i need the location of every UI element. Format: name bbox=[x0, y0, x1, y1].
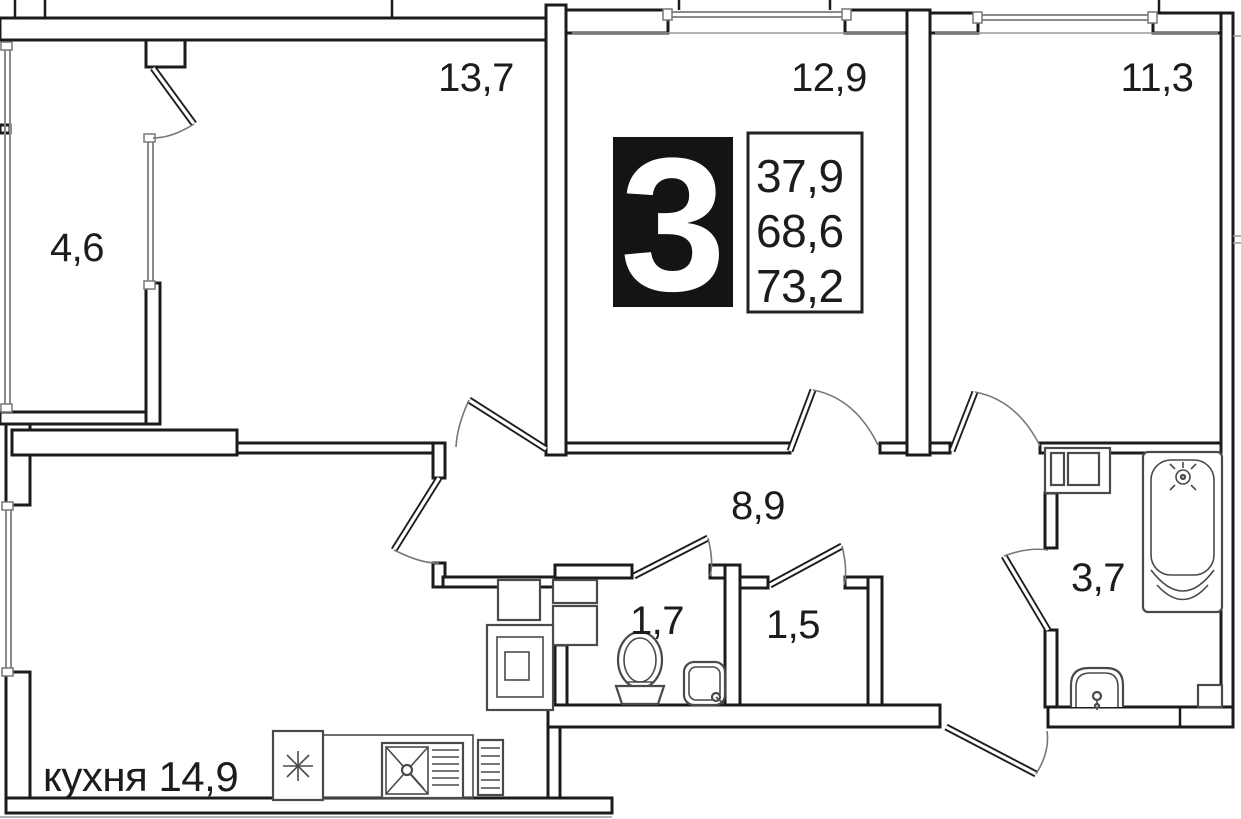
window-bedroom-left-balcony bbox=[144, 134, 155, 289]
washbasin-bathroom bbox=[1071, 668, 1123, 710]
utility-box bbox=[1198, 685, 1222, 707]
door-kitchen bbox=[394, 478, 439, 563]
room-label-bathroom: 3,7 bbox=[1071, 556, 1125, 600]
badge-rooms-count: 3 bbox=[620, 119, 726, 331]
floor-plan-drawing: 13,7 12,9 11,3 4,6 8,9 1,7 1,5 3,7 кухня… bbox=[0, 0, 1241, 819]
door-storage bbox=[770, 546, 846, 585]
room-label-bedroom-mid: 12,9 bbox=[791, 56, 867, 100]
room-label-wc: 1,7 bbox=[630, 599, 684, 643]
room-label-hallway: 8,9 bbox=[731, 484, 785, 528]
apartment-type-badge: 3 37,9 68,6 73,2 bbox=[613, 119, 862, 331]
door-wc bbox=[634, 538, 712, 576]
refrigerator bbox=[487, 625, 553, 710]
door-bathroom bbox=[1004, 549, 1048, 630]
door-bedroom-left bbox=[456, 400, 546, 449]
window-balcony-glazing bbox=[1, 42, 12, 412]
door-bedroom-right bbox=[952, 392, 1040, 451]
room-label-kitchen: кухня 14,9 bbox=[43, 753, 238, 800]
kitchen-sink bbox=[382, 743, 463, 798]
vent-shaft-bathroom bbox=[1045, 448, 1110, 493]
corner-sink-wc bbox=[684, 662, 725, 705]
room-label-bedroom-left: 13,7 bbox=[438, 56, 514, 100]
door-entrance bbox=[946, 727, 1048, 774]
room-label-storage: 1,5 bbox=[766, 603, 820, 647]
room-label-bedroom-right: 11,3 bbox=[1121, 56, 1194, 100]
door-balcony bbox=[153, 68, 194, 138]
badge-area-usable: 68,6 bbox=[756, 205, 844, 257]
stove-icon bbox=[273, 731, 323, 800]
badge-area-living: 37,9 bbox=[756, 150, 844, 202]
room-label-balcony: 4,6 bbox=[50, 226, 104, 270]
badge-area-total: 73,2 bbox=[756, 260, 844, 312]
dishwasher bbox=[478, 740, 503, 795]
door-bedroom-mid bbox=[790, 390, 878, 451]
floor-plan-canvas: 13,7 12,9 11,3 4,6 8,9 1,7 1,5 3,7 кухня… bbox=[0, 0, 1241, 819]
